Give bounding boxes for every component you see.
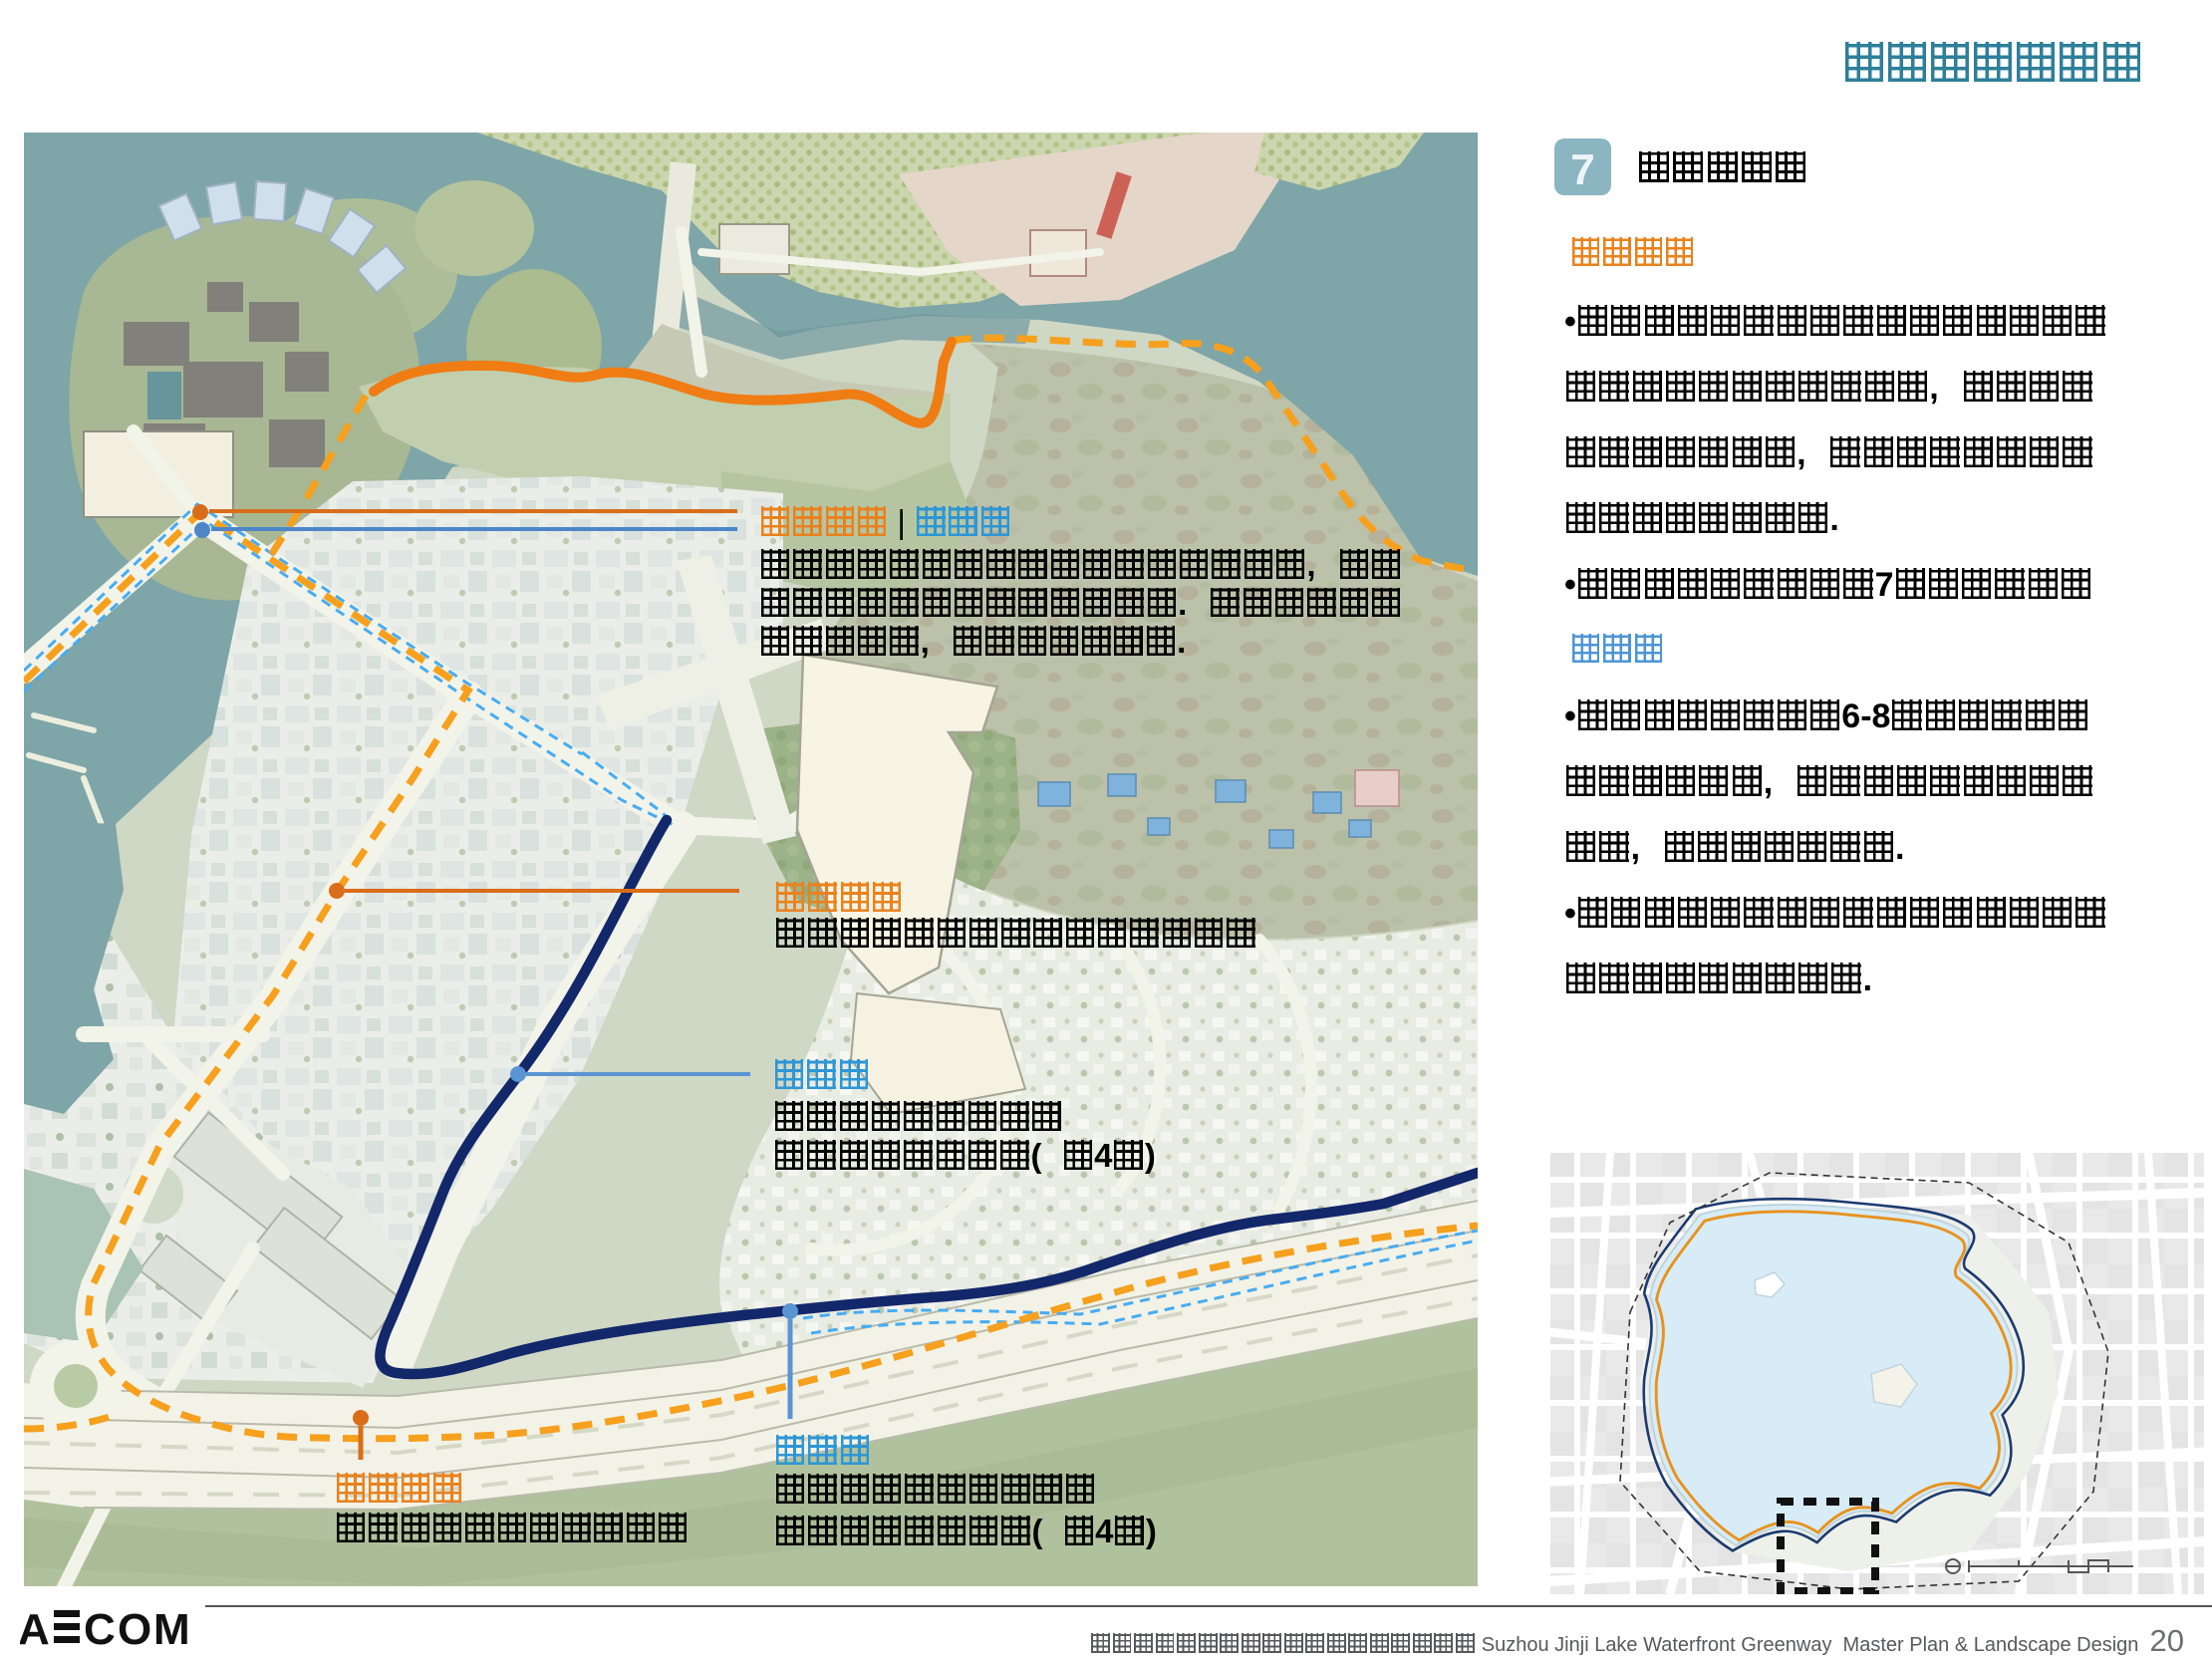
svg-text:O: O — [118, 1606, 151, 1652]
svg-text:M: M — [153, 1606, 189, 1652]
svg-text:A: A — [20, 1606, 50, 1652]
svg-text:C: C — [84, 1606, 116, 1652]
